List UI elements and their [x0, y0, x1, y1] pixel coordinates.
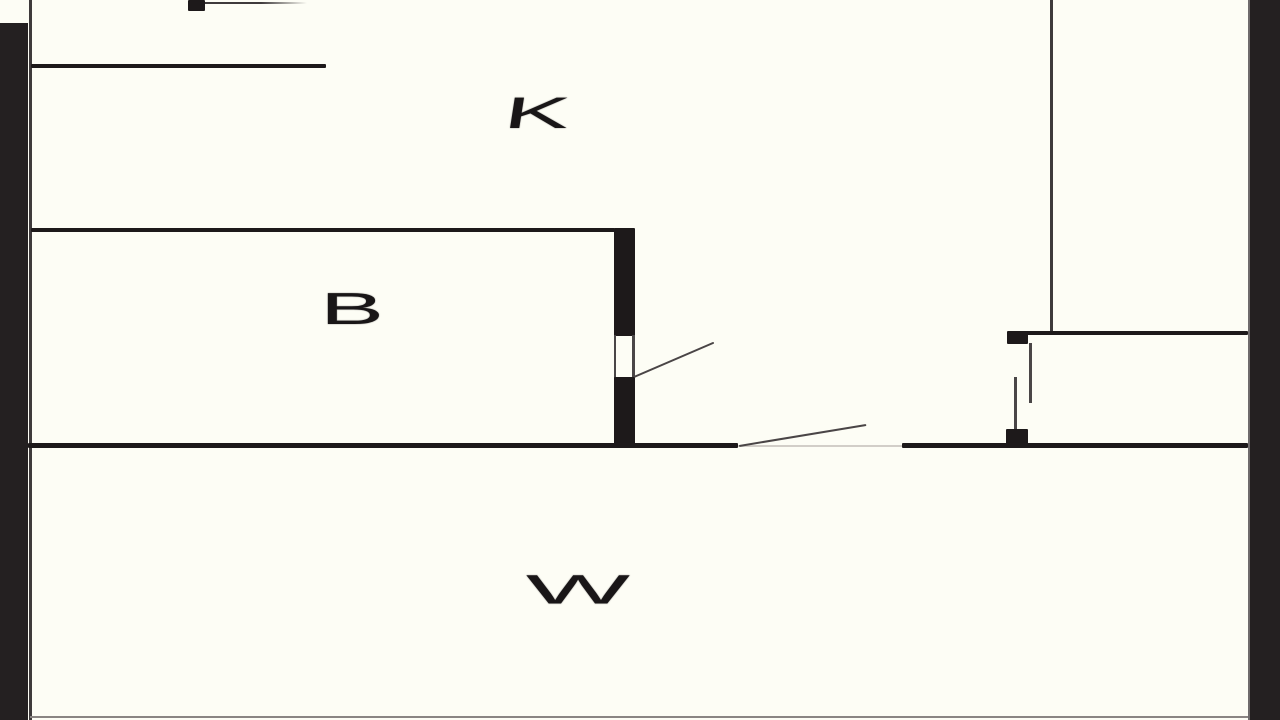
floor-plan-canvas: K B W — [0, 0, 1280, 720]
closet-door-leaf-outer — [1029, 343, 1032, 403]
letterbox-right-bar — [1248, 0, 1280, 720]
room-label-b: B — [320, 288, 384, 332]
bottom-doorway-swing-line — [739, 424, 867, 447]
bottom-wall-right-segment — [902, 443, 1248, 448]
left-boundary-wall-line — [29, 0, 32, 720]
room-b-right-wall-upper — [614, 228, 635, 336]
room-b-door-jamb-right — [632, 335, 635, 378]
room-label-w: W — [526, 571, 630, 612]
room-b-door-swing-line — [634, 342, 715, 378]
room-label-k: K — [501, 92, 574, 136]
room-b-top-wall — [31, 228, 615, 232]
letterbox-left-bar — [0, 23, 28, 720]
bottom-wall-left-segment — [28, 443, 738, 448]
bottom-doorway-threshold — [738, 445, 902, 447]
closet-door-stub-top — [1007, 331, 1028, 344]
closet-bottom-wall — [1010, 331, 1248, 335]
bottom-edge-line — [30, 716, 1248, 718]
top-wall-stub — [188, 0, 205, 11]
room-b-door-jamb-left — [614, 335, 616, 378]
kitchen-partition-wall — [31, 64, 326, 68]
room-b-right-wall-lower — [614, 377, 635, 446]
top-wall-thin-line — [205, 2, 307, 4]
closet-door-leaf-inner — [1014, 377, 1017, 433]
closet-door-stub-bottom — [1006, 429, 1028, 448]
closet-left-wall-line — [1050, 0, 1053, 332]
